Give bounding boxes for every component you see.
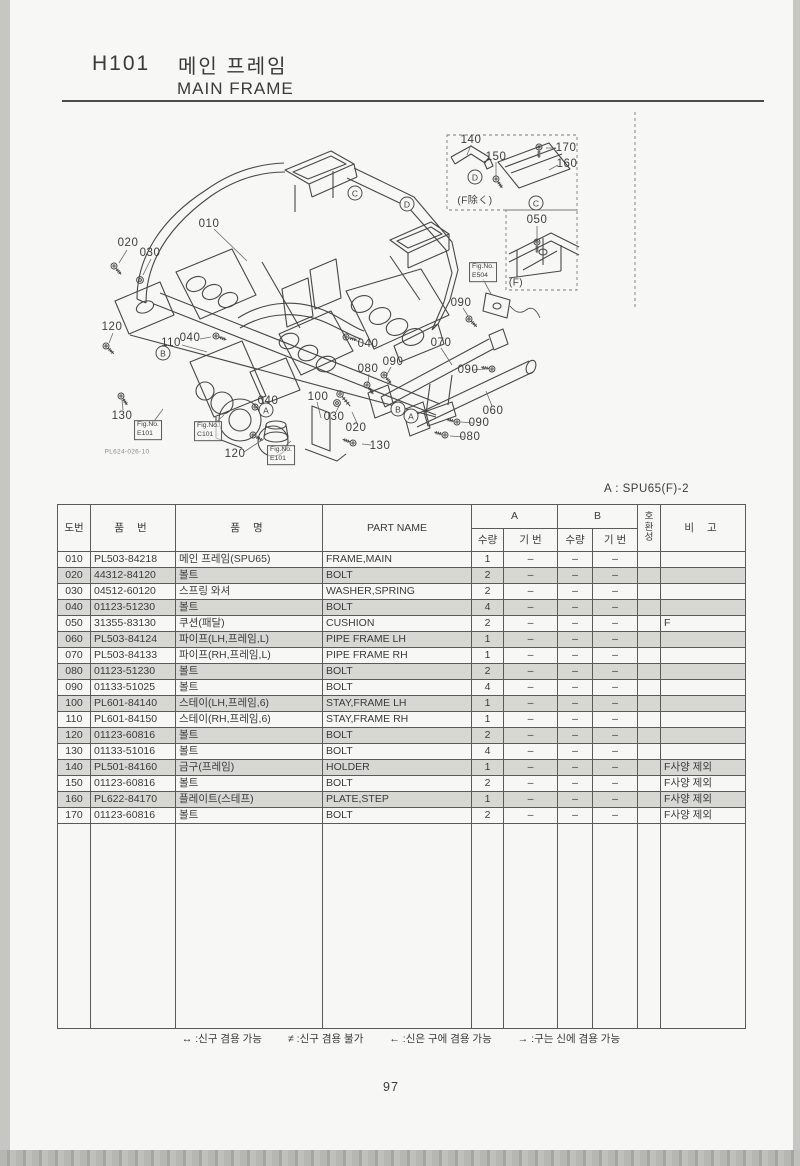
model-variant-note: A : SPU65(F)-2 xyxy=(604,483,689,495)
cell-no: 100 xyxy=(58,696,91,712)
cell-remarks xyxy=(661,632,746,648)
cell-qty-a xyxy=(472,824,504,1029)
cell-compat xyxy=(638,776,661,792)
cell-name-ko: 스테이(LH,프레임,6) xyxy=(176,696,323,712)
cell-qty-b: – xyxy=(558,648,593,664)
cell-qty-b xyxy=(558,824,593,1029)
cell-qty-a: 1 xyxy=(472,648,504,664)
main-frame-tubes xyxy=(130,163,458,417)
cell-serial-a: – xyxy=(504,792,558,808)
table-row xyxy=(58,824,746,1029)
cell-remarks: F사양 제외 xyxy=(661,792,746,808)
col-header-qty-a: 수량 xyxy=(472,529,504,552)
cell-serial-b: – xyxy=(593,664,638,680)
table-row: 080 01123-51230 볼트 BOLT 2 – – – xyxy=(58,664,746,680)
cell-remarks xyxy=(661,568,746,584)
cell-part-name: BOLT xyxy=(323,600,472,616)
cell-part-name: BOLT xyxy=(323,728,472,744)
cell-part-name: WASHER,SPRING xyxy=(323,584,472,600)
cell-no: 150 xyxy=(58,776,91,792)
compat-char-1: 호 xyxy=(638,512,660,523)
col-header-compat: 호 환 성 xyxy=(638,505,661,552)
cell-serial-a: – xyxy=(504,728,558,744)
cell-part-name xyxy=(323,824,472,1029)
cell-serial-a: – xyxy=(504,760,558,776)
compat-char-3: 성 xyxy=(638,533,660,544)
cell-compat xyxy=(638,808,661,824)
table-row: 010 PL503-84218 메인 프레임(SPU65) FRAME,MAIN… xyxy=(58,552,746,568)
col-header-no: 도번 xyxy=(58,505,91,552)
cell-part-no: 01123-60816 xyxy=(91,808,176,824)
col-header-part-no: 품 번 xyxy=(91,505,176,552)
cell-serial-b: – xyxy=(593,792,638,808)
cell-qty-a: 2 xyxy=(472,776,504,792)
cell-part-no: 04512-60120 xyxy=(91,584,176,600)
cell-remarks xyxy=(661,648,746,664)
cell-part-no: PL503-84133 xyxy=(91,648,176,664)
cell-no: 120 xyxy=(58,728,91,744)
cell-serial-b: – xyxy=(593,552,638,568)
table-row: 020 44312-84120 볼트 BOLT 2 – – – xyxy=(58,568,746,584)
cell-remarks: F사양 제외 xyxy=(661,808,746,824)
table-row: 040 01123-51230 볼트 BOLT 4 – – – xyxy=(58,600,746,616)
cell-name-ko: 볼트 xyxy=(176,680,323,696)
col-header-serial-a: 기 번 xyxy=(504,529,558,552)
cell-compat xyxy=(638,744,661,760)
cell-compat xyxy=(638,664,661,680)
cell-compat xyxy=(638,584,661,600)
cell-name-ko: 볼트 xyxy=(176,776,323,792)
cell-name-ko: 볼트 xyxy=(176,808,323,824)
cell-name-ko: 볼트 xyxy=(176,568,323,584)
cell-serial-b: – xyxy=(593,808,638,824)
cell-qty-b: – xyxy=(558,584,593,600)
cell-serial-b: – xyxy=(593,680,638,696)
cell-qty-a: 4 xyxy=(472,600,504,616)
cell-compat xyxy=(638,568,661,584)
table-row: 060 PL503-84124 파이프(LH,프레임,L) PIPE FRAME… xyxy=(58,632,746,648)
cell-serial-a xyxy=(504,824,558,1029)
cell-qty-a: 4 xyxy=(472,744,504,760)
cell-part-name: PLATE,STEP xyxy=(323,792,472,808)
cell-serial-b: – xyxy=(593,712,638,728)
cell-qty-b: – xyxy=(558,616,593,632)
cell-qty-a: 1 xyxy=(472,552,504,568)
parts-table: 도번 품 번 품 명 PART NAME A B 호 환 성 비 고 수량 기 … xyxy=(57,504,746,1029)
cell-no: 040 xyxy=(58,600,91,616)
cell-qty-b: – xyxy=(558,744,593,760)
legend-item: ← :신은 구에 겸용 가능 xyxy=(389,1033,491,1045)
cell-part-name: STAY,FRAME RH xyxy=(323,712,472,728)
col-header-a: A xyxy=(472,505,558,529)
inset-dashed-boxes xyxy=(447,112,635,310)
table-row: 100 PL601-84140 스테이(LH,프레임,6) STAY,FRAME… xyxy=(58,696,746,712)
cell-qty-a: 1 xyxy=(472,760,504,776)
cell-part-no: PL503-84218 xyxy=(91,552,176,568)
cell-no: 070 xyxy=(58,648,91,664)
cell-name-ko: 쿠션(패달) xyxy=(176,616,323,632)
page-number: 97 xyxy=(383,1080,399,1094)
cell-serial-a: – xyxy=(504,776,558,792)
cell-compat xyxy=(638,728,661,744)
table-row: 170 01123-60816 볼트 BOLT 2 – – – F사양 제외 xyxy=(58,808,746,824)
cell-remarks xyxy=(661,584,746,600)
cell-no: 080 xyxy=(58,664,91,680)
cell-serial-a: – xyxy=(504,600,558,616)
legend-item: ≠ :신구 겸용 불가 xyxy=(288,1033,363,1045)
table-row: 160 PL622-84170 플레이트(스테프) PLATE,STEP 1 –… xyxy=(58,792,746,808)
cell-compat xyxy=(638,600,661,616)
cell-compat xyxy=(638,760,661,776)
cell-qty-a: 1 xyxy=(472,632,504,648)
cell-remarks: F xyxy=(661,616,746,632)
cell-part-no: 01123-60816 xyxy=(91,728,176,744)
cell-compat xyxy=(638,712,661,728)
cell-qty-b: – xyxy=(558,568,593,584)
cell-no: 050 xyxy=(58,616,91,632)
cell-part-name: BOLT xyxy=(323,744,472,760)
cell-name-ko: 볼트 xyxy=(176,600,323,616)
cell-name-ko: 메인 프레임(SPU65) xyxy=(176,552,323,568)
cell-part-name: PIPE FRAME RH xyxy=(323,648,472,664)
cell-no: 090 xyxy=(58,680,91,696)
cell-name-ko: 볼트 xyxy=(176,744,323,760)
cell-serial-b: – xyxy=(593,760,638,776)
cell-remarks xyxy=(661,744,746,760)
scanned-catalog-page: { "header": { "section_code": "H101", "t… xyxy=(0,0,800,1166)
cell-qty-b: – xyxy=(558,696,593,712)
cell-qty-a: 2 xyxy=(472,728,504,744)
cell-remarks: F사양 제외 xyxy=(661,760,746,776)
table-row: 050 31355-83130 쿠션(패달) CUSHION 2 – – – F xyxy=(58,616,746,632)
cell-name-ko: 스테이(RH,프레임,6) xyxy=(176,712,323,728)
table-row: 150 01123-60816 볼트 BOLT 2 – – – F사양 제외 xyxy=(58,776,746,792)
cell-compat xyxy=(638,696,661,712)
compatibility-legend: ↔ :신구 겸용 가능≠ :신구 겸용 불가← :신은 구에 겸용 가능→ :구… xyxy=(57,1031,745,1046)
section-code: H101 xyxy=(92,52,150,76)
cell-part-no: 31355-83130 xyxy=(91,616,176,632)
cell-qty-a: 2 xyxy=(472,584,504,600)
fastener-icons xyxy=(102,144,542,447)
cell-serial-b: – xyxy=(593,616,638,632)
cell-serial-b: – xyxy=(593,648,638,664)
cell-serial-a: – xyxy=(504,696,558,712)
cell-compat xyxy=(638,632,661,648)
table-row: 090 01133-51025 볼트 BOLT 4 – – – xyxy=(58,680,746,696)
cell-serial-b: – xyxy=(593,744,638,760)
cell-no: 160 xyxy=(58,792,91,808)
cell-name-ko xyxy=(176,824,323,1029)
cell-part-no: PL601-84150 xyxy=(91,712,176,728)
cell-serial-a: – xyxy=(504,616,558,632)
table-row: 120 01123-60816 볼트 BOLT 2 – – – xyxy=(58,728,746,744)
cell-serial-b: – xyxy=(593,584,638,600)
cell-no xyxy=(58,824,91,1029)
cell-serial-b: – xyxy=(593,568,638,584)
parts-table-header: 도번 품 번 품 명 PART NAME A B 호 환 성 비 고 수량 기 … xyxy=(58,505,746,552)
cell-qty-b: – xyxy=(558,664,593,680)
cell-remarks: F사양 제외 xyxy=(661,776,746,792)
cell-part-name: BOLT xyxy=(323,680,472,696)
cell-qty-a: 1 xyxy=(472,792,504,808)
gearbox-cluster xyxy=(190,341,346,461)
cell-name-ko: 파이프(RH,프레임,L) xyxy=(176,648,323,664)
cell-qty-b: – xyxy=(558,552,593,568)
cell-part-no xyxy=(91,824,176,1029)
main-frame-plates xyxy=(115,151,540,375)
cell-name-ko: 파이프(LH,프레임,L) xyxy=(176,632,323,648)
cell-part-no: PL501-84160 xyxy=(91,760,176,776)
cell-part-no: 01123-60816 xyxy=(91,776,176,792)
col-header-b: B xyxy=(558,505,638,529)
cell-no: 130 xyxy=(58,744,91,760)
cell-no: 170 xyxy=(58,808,91,824)
cell-name-ko: 플레이트(스테프) xyxy=(176,792,323,808)
cell-part-no: 44312-84120 xyxy=(91,568,176,584)
cell-part-name: PIPE FRAME LH xyxy=(323,632,472,648)
cell-part-no: PL601-84140 xyxy=(91,696,176,712)
cell-remarks xyxy=(661,728,746,744)
table-row: 140 PL501-84160 금구(프레임) HOLDER 1 – – – F… xyxy=(58,760,746,776)
cell-serial-a: – xyxy=(504,648,558,664)
cell-qty-b: – xyxy=(558,600,593,616)
cell-serial-b: – xyxy=(593,776,638,792)
cell-part-name: FRAME,MAIN xyxy=(323,552,472,568)
inset-parts xyxy=(451,143,579,278)
cell-part-name: BOLT xyxy=(323,664,472,680)
cell-part-name: CUSHION xyxy=(323,616,472,632)
cell-serial-b: – xyxy=(593,632,638,648)
page-title-korean: 메인 프레임 xyxy=(178,50,288,79)
parts-table-body: 010 PL503-84218 메인 프레임(SPU65) FRAME,MAIN… xyxy=(58,552,746,1029)
cell-part-no: PL622-84170 xyxy=(91,792,176,808)
cell-compat xyxy=(638,824,661,1029)
cell-compat xyxy=(638,552,661,568)
pipe-frames xyxy=(368,329,538,436)
cell-compat xyxy=(638,616,661,632)
table-row: 130 01133-51016 볼트 BOLT 4 – – – xyxy=(58,744,746,760)
col-header-serial-b: 기 번 xyxy=(593,529,638,552)
cell-part-name: BOLT xyxy=(323,808,472,824)
cell-serial-a: – xyxy=(504,584,558,600)
table-row: 070 PL503-84133 파이프(RH,프레임,L) PIPE FRAME… xyxy=(58,648,746,664)
cell-qty-a: 1 xyxy=(472,712,504,728)
cell-qty-b: – xyxy=(558,632,593,648)
col-header-qty-b: 수량 xyxy=(558,529,593,552)
col-header-remarks: 비 고 xyxy=(661,505,746,552)
cell-serial-a: – xyxy=(504,744,558,760)
legend-item: ↔ :신구 겸용 가능 xyxy=(182,1033,262,1045)
col-header-part-name: PART NAME xyxy=(323,505,472,552)
cell-no: 020 xyxy=(58,568,91,584)
cell-serial-a: – xyxy=(504,808,558,824)
cell-name-ko: 금구(프레임) xyxy=(176,760,323,776)
cell-qty-b: – xyxy=(558,680,593,696)
cell-no: 110 xyxy=(58,712,91,728)
cell-qty-a: 2 xyxy=(472,664,504,680)
cell-serial-a: – xyxy=(504,568,558,584)
cell-no: 140 xyxy=(58,760,91,776)
cell-qty-a: 2 xyxy=(472,568,504,584)
cell-serial-b: – xyxy=(593,728,638,744)
cell-part-name: BOLT xyxy=(323,776,472,792)
cell-remarks xyxy=(661,600,746,616)
cell-qty-a: 4 xyxy=(472,680,504,696)
cell-serial-a: – xyxy=(504,552,558,568)
col-header-name-ko: 품 명 xyxy=(176,505,323,552)
cell-serial-a: – xyxy=(504,680,558,696)
cell-compat xyxy=(638,648,661,664)
header-rule xyxy=(62,100,764,102)
cell-remarks xyxy=(661,680,746,696)
legend-item: → :구는 신에 겸용 가능 xyxy=(518,1033,620,1045)
cell-serial-b: – xyxy=(593,600,638,616)
cell-name-ko: 스프링 와셔 xyxy=(176,584,323,600)
table-row: 110 PL601-84150 스테이(RH,프레임,6) STAY,FRAME… xyxy=(58,712,746,728)
cell-serial-a: – xyxy=(504,632,558,648)
cell-qty-b: – xyxy=(558,792,593,808)
cell-qty-b: – xyxy=(558,776,593,792)
cell-compat xyxy=(638,792,661,808)
cell-remarks xyxy=(661,712,746,728)
cell-no: 010 xyxy=(58,552,91,568)
cell-serial-b xyxy=(593,824,638,1029)
frame-diagram-art xyxy=(55,105,710,485)
cell-qty-b: – xyxy=(558,728,593,744)
page-title-english: MAIN FRAME xyxy=(177,79,294,99)
cell-part-name: STAY,FRAME LH xyxy=(323,696,472,712)
cell-remarks xyxy=(661,824,746,1029)
cell-part-no: 01123-51230 xyxy=(91,600,176,616)
cell-qty-b: – xyxy=(558,712,593,728)
cell-part-no: 01133-51016 xyxy=(91,744,176,760)
cell-name-ko: 볼트 xyxy=(176,664,323,680)
cell-no: 060 xyxy=(58,632,91,648)
cell-serial-b: – xyxy=(593,696,638,712)
cell-qty-b: – xyxy=(558,760,593,776)
cell-serial-a: – xyxy=(504,712,558,728)
cell-name-ko: 볼트 xyxy=(176,728,323,744)
cell-remarks xyxy=(661,552,746,568)
cell-part-no: 01123-51230 xyxy=(91,664,176,680)
cell-qty-a: 2 xyxy=(472,808,504,824)
cell-qty-b: – xyxy=(558,808,593,824)
cell-qty-a: 2 xyxy=(472,616,504,632)
cell-remarks xyxy=(661,664,746,680)
cell-no: 030 xyxy=(58,584,91,600)
cell-part-no: 01133-51025 xyxy=(91,680,176,696)
scan-edge-strip xyxy=(0,1150,800,1166)
cell-part-name: BOLT xyxy=(323,568,472,584)
table-row: 030 04512-60120 스프링 와셔 WASHER,SPRING 2 –… xyxy=(58,584,746,600)
cell-compat xyxy=(638,680,661,696)
cell-qty-a: 1 xyxy=(472,696,504,712)
cell-part-no: PL503-84124 xyxy=(91,632,176,648)
cell-serial-a: – xyxy=(504,664,558,680)
cell-remarks xyxy=(661,696,746,712)
cell-part-name: HOLDER xyxy=(323,760,472,776)
